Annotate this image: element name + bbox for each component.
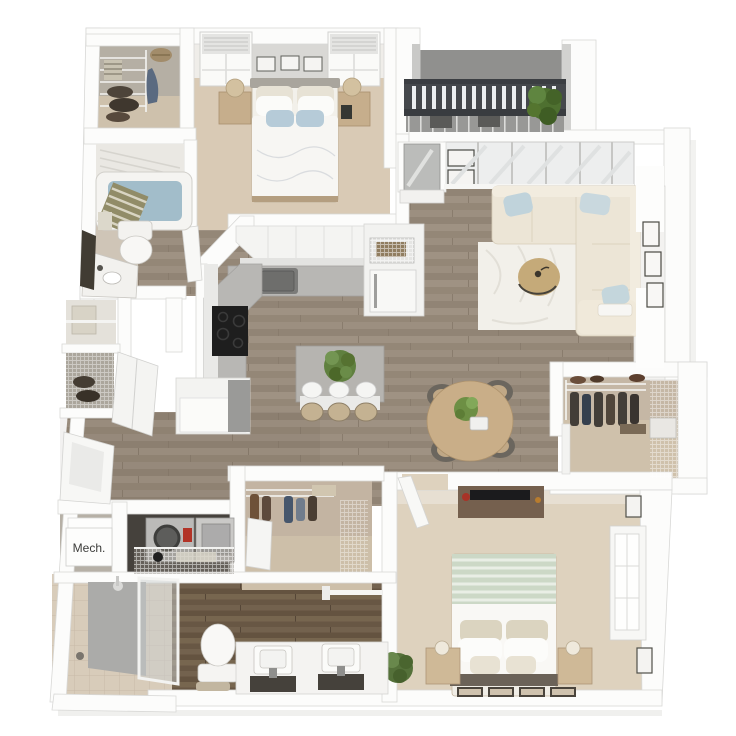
svg-text:Mech.: Mech. [73, 541, 106, 555]
